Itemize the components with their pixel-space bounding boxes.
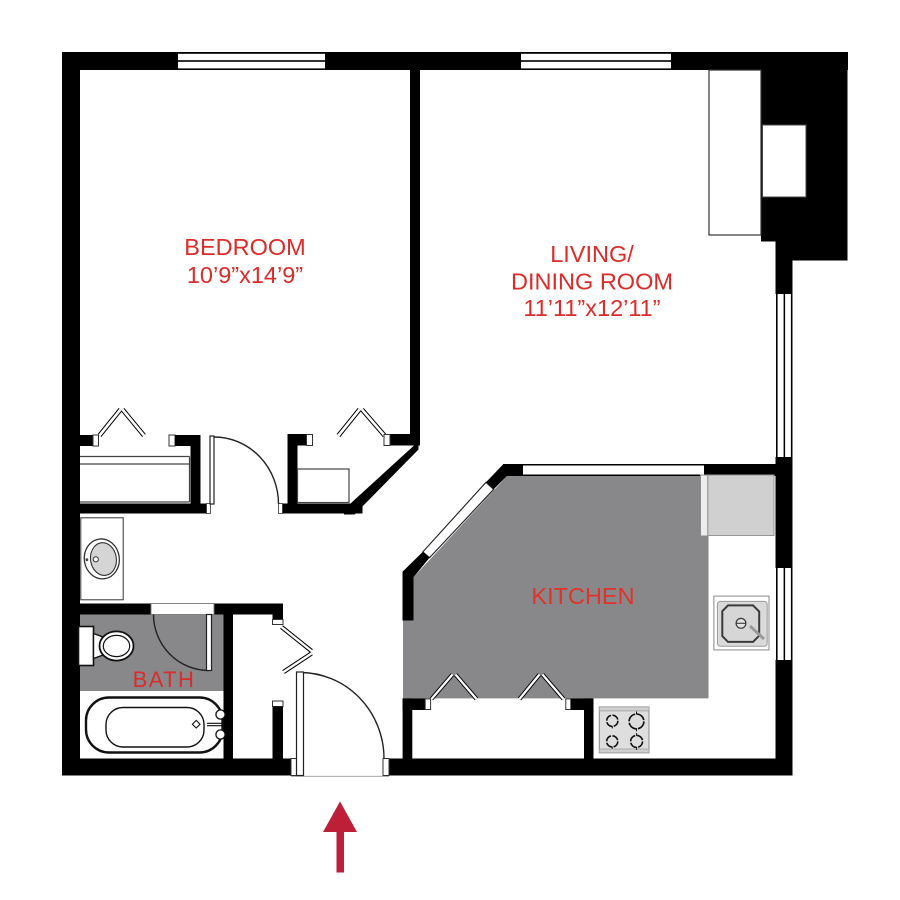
svg-text:BATH: BATH [133,667,196,692]
svg-text:LIVING/: LIVING/ [550,241,634,267]
svg-text:10’9”x14’9”: 10’9”x14’9” [187,262,303,288]
svg-text:BEDROOM: BEDROOM [184,234,305,260]
svg-text:DINING ROOM: DINING ROOM [511,269,673,295]
svg-text:11’11”x12’11”: 11’11”x12’11” [523,295,660,321]
svg-text:KITCHEN: KITCHEN [531,583,634,609]
